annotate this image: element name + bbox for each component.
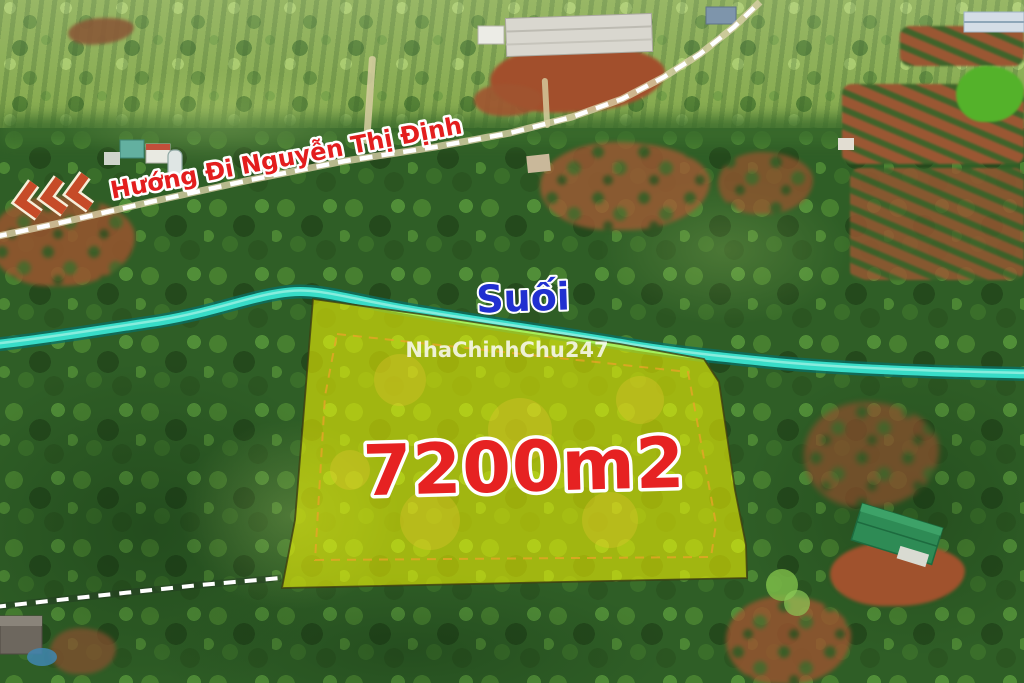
- green-roof-house: [851, 504, 942, 568]
- banana-trees: [784, 590, 810, 616]
- stream-label: Suối: [475, 274, 570, 321]
- house-roof-edge: [146, 144, 170, 150]
- warehouse-building: [505, 13, 652, 56]
- aerial-photo: Hướng Đi Nguyễn Thị Định Suối NhaChinhCh…: [0, 0, 1024, 683]
- small-shed: [104, 152, 120, 165]
- watermark-text: NhaChinhChu247: [405, 338, 608, 362]
- small-house: [838, 138, 854, 150]
- teal-roof-house: [120, 140, 144, 158]
- long-building-top-right: [964, 12, 1024, 32]
- annotation-overlay: Hướng Đi Nguyễn Thị Định Suối NhaChinhCh…: [0, 0, 1024, 683]
- white-shed: [478, 26, 504, 44]
- boundary-dashed-line: [0, 578, 281, 607]
- farm-shed: [526, 154, 551, 173]
- farm-building-bottom-left: [0, 616, 57, 666]
- blue-roof-house: [706, 7, 736, 24]
- pond: [27, 648, 57, 666]
- plot-area-label: 7200m2: [362, 422, 687, 512]
- direction-arrows-icon: [18, 175, 90, 217]
